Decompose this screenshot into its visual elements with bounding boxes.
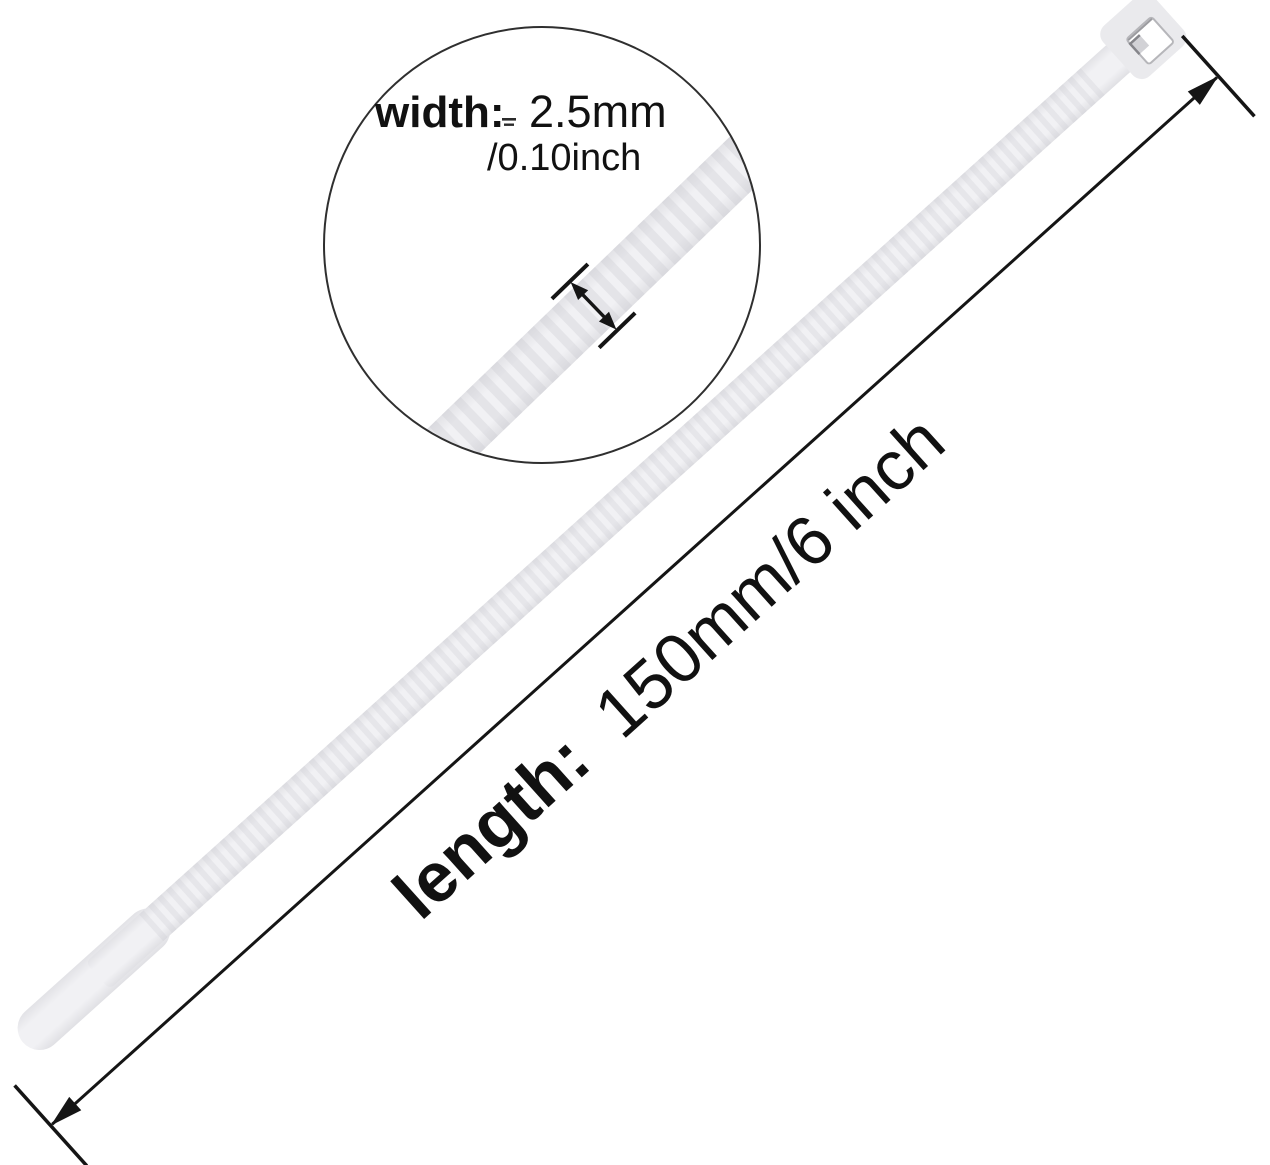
product-diagram-canvas: width: 2.5mm /0.10inch length: 150mm/6 i… (0, 0, 1270, 1165)
length-label-value: 150mm/6 inch (580, 401, 959, 753)
width-label-imperial: /0.10inch (487, 137, 641, 179)
length-tick-end (1182, 36, 1254, 116)
product-diagram: width: 2.5mm /0.10inch length: 150mm/6 i… (0, 0, 1270, 1165)
width-label-key: width: (374, 88, 505, 137)
length-label-key: length: (378, 719, 604, 933)
width-label-metric: 2.5mm (529, 86, 667, 137)
length-tick-start (15, 1085, 87, 1165)
